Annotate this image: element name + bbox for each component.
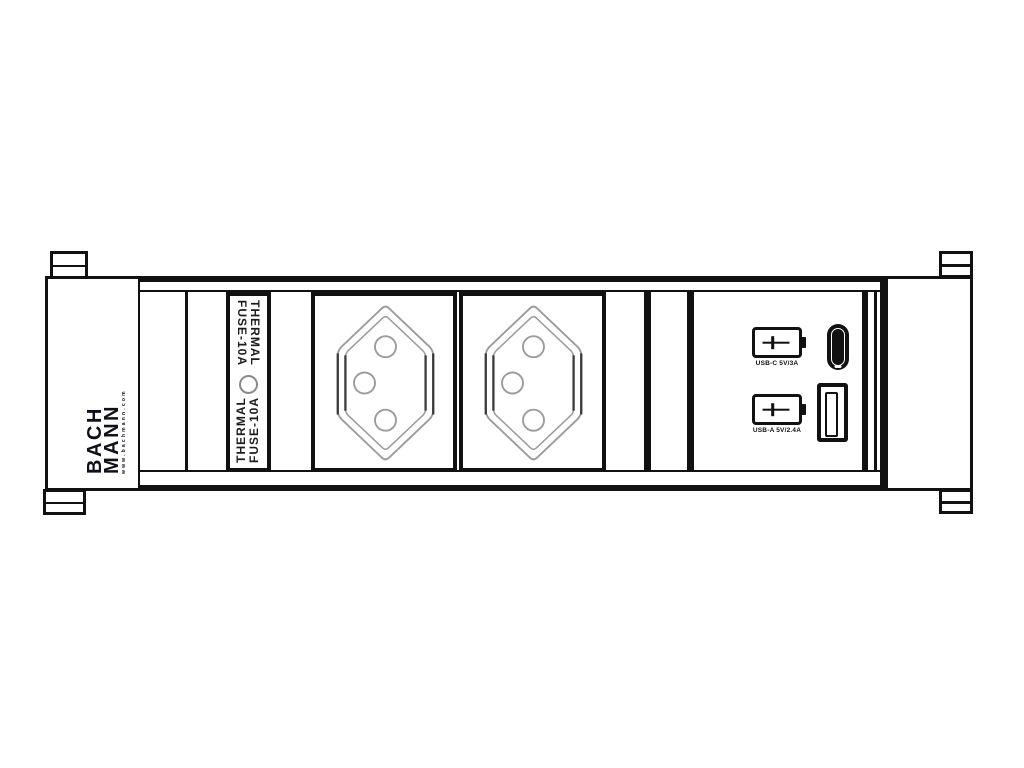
end-cap-right — [885, 276, 973, 491]
power-strip-drawing: BACH MANN www.bachmann.com THERMAL FUSE-… — [0, 0, 1024, 768]
usb-c-port-icon — [827, 324, 849, 370]
usb-a-tongue — [825, 392, 838, 437]
thermal-fuse-label-bottom: THERMAL FUSE-10A — [233, 388, 263, 472]
module-divider — [185, 292, 188, 470]
usb-c-notch — [835, 365, 842, 368]
clamp-divider — [53, 265, 85, 268]
module-divider — [687, 292, 694, 470]
clamp-divider — [46, 502, 83, 505]
clamp-divider — [942, 501, 970, 504]
usb-c-spec-text: USB-C 5V/3A — [737, 360, 817, 367]
fuse-label-line-2: FUSE-10A — [235, 300, 248, 366]
brand-tagline: www.bachmann.com — [121, 389, 127, 474]
fuse-label-line-1: THERMAL — [248, 300, 261, 366]
mounting-clamp-bottom-left — [43, 489, 86, 515]
mounting-clamp-top-right — [939, 251, 973, 278]
module-divider — [874, 292, 877, 470]
battery-charging-icon — [752, 327, 802, 358]
mounting-clamp-top-left — [50, 251, 88, 279]
brand-line-2: MANN — [104, 404, 120, 474]
fuse-label-line-1: THERMAL — [235, 397, 248, 463]
brand-logo: BACH MANN www.bachmann.com — [84, 384, 130, 474]
mounting-clamp-bottom-right — [939, 489, 973, 514]
usb-charger-module: USB-C 5V/3A USB-A 5V/2.4A — [694, 292, 862, 470]
clamp-divider — [942, 264, 970, 267]
module-divider — [644, 292, 651, 470]
thermal-fuse-label-top: THERMAL FUSE-10A — [233, 291, 263, 375]
usb-c-inner-ring — [831, 328, 845, 366]
swiss-socket-icon — [333, 299, 438, 467]
plus-sign — [762, 341, 789, 344]
battery-charging-icon — [752, 394, 802, 425]
usb-a-spec-text: USB-A 5V/2.4A — [737, 427, 817, 434]
usb-a-port-icon — [817, 383, 848, 442]
usb-module-right-border — [862, 292, 868, 470]
fuse-label-line-2: FUSE-10A — [248, 397, 261, 463]
swiss-socket-icon — [481, 299, 586, 467]
plus-sign — [762, 408, 789, 411]
